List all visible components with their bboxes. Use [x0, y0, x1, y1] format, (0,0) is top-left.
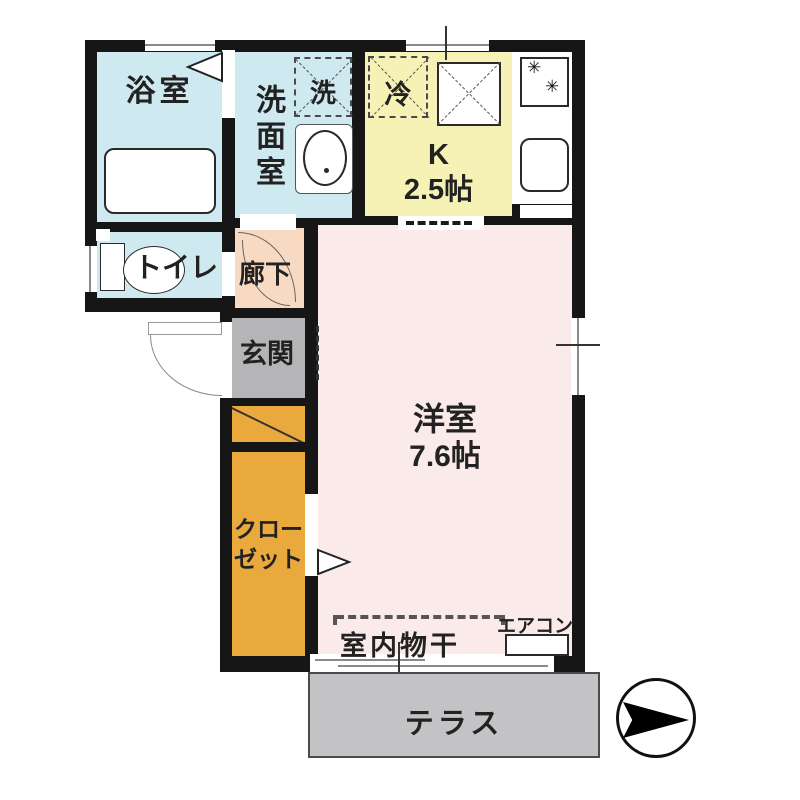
stove-burner-icon: ✳ — [527, 58, 541, 78]
shoe-cabinet — [232, 406, 305, 442]
hallway-label: 廊下 — [239, 254, 291, 291]
north-arrow-icon — [616, 678, 696, 758]
fridge-label: 冷 — [370, 73, 426, 112]
washer-label: 洗 — [296, 73, 350, 110]
window-living-right — [571, 318, 585, 395]
stove-burner-icon: ✳ — [545, 77, 559, 97]
washroom-label: 洗面室 — [245, 84, 289, 192]
washing-machine-space: 洗 — [294, 57, 352, 117]
counter-slot-window — [520, 205, 572, 218]
stove: ✳ ✳ — [520, 57, 569, 107]
window-kitchen-top — [406, 39, 489, 51]
entrance-door-leaf — [148, 322, 222, 335]
window-tick-top — [445, 26, 447, 60]
genkan-label: 玄関 — [240, 332, 294, 371]
washroom-sink-bowl — [303, 130, 347, 186]
kitchen-sink — [520, 138, 569, 192]
toilet-label: トイレ — [134, 246, 218, 286]
washroom-door-opening — [240, 214, 296, 230]
window-toilet-left — [84, 246, 97, 292]
toilet-tank — [100, 243, 125, 291]
fridge-space: 冷 — [368, 56, 428, 118]
closet-label-line1: クロー — [232, 514, 305, 544]
terrace-label: テラス — [310, 700, 598, 742]
bathtub — [104, 148, 216, 214]
indoor-drying-label: 室内物干 — [340, 624, 460, 663]
entrance-door-arc — [150, 335, 222, 396]
living-label-line1: 洋室 — [350, 400, 540, 438]
closet-label: クロー ゼット — [232, 514, 305, 574]
terrace: テラス — [308, 672, 600, 758]
bath-label: 浴室 — [97, 66, 222, 110]
closet-label-line2: ゼット — [232, 544, 305, 574]
kitchen-opening — [398, 216, 484, 230]
toilet-door-opening — [222, 252, 235, 296]
genkan-boundary-dashed — [316, 326, 319, 380]
kitchen-label-line1: K — [365, 138, 512, 173]
aircon-label: エアコン — [497, 611, 573, 638]
living-label-line2: 7.6帖 — [350, 438, 540, 476]
living-label: 洋室 7.6帖 — [350, 400, 540, 476]
window-tick-right — [556, 344, 600, 346]
kitchen-label-line2: 2.5帖 — [365, 173, 512, 208]
closet-door-icon — [316, 548, 352, 576]
floor-plan: 洗 冷 ✳ ✳ テラス 浴室 洗面室 K 2.5 — [0, 0, 800, 800]
kitchen-label: K 2.5帖 — [365, 138, 512, 208]
shoe-cabinet-diagonal — [232, 406, 305, 442]
toilet-wall-notch — [96, 229, 110, 241]
kitchen-hatch-square — [437, 62, 501, 126]
